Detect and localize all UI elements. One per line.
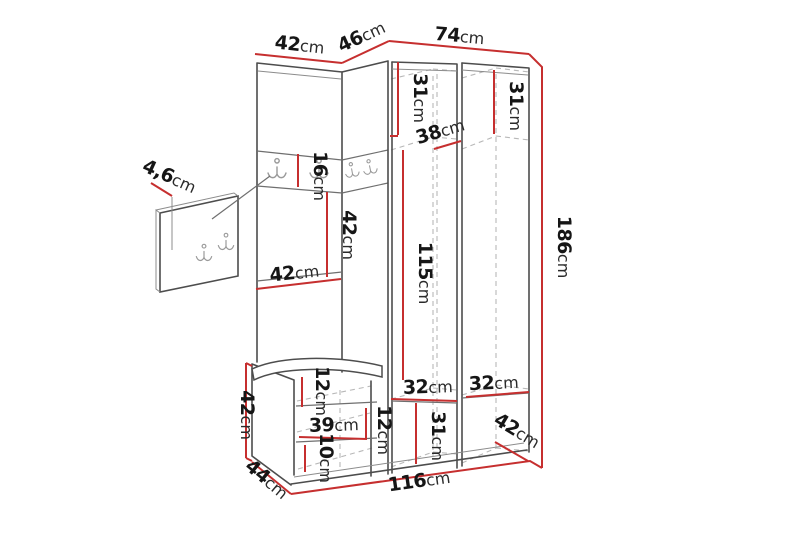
dim-line-total-height bbox=[529, 54, 542, 468]
hook-panel-leader-line bbox=[212, 176, 270, 219]
diagram-canvas: 42cm 46cm 74cm 31cm 31cm 38cm 186cm 4,6c… bbox=[0, 0, 800, 533]
dim-label-bench-depth: 44cm bbox=[241, 455, 293, 504]
dim-label-bench-top-gap: 12cm bbox=[311, 366, 333, 416]
hook-icon bbox=[268, 159, 286, 178]
hook-icon bbox=[218, 233, 233, 249]
hook-icon bbox=[344, 161, 360, 177]
dim-label-top-width-left: 42cm bbox=[274, 31, 326, 58]
dim-label-bench-bottom-gap: 10cm bbox=[315, 433, 337, 483]
left-cabinet-top-inner-edge bbox=[258, 71, 341, 79]
dim-label-bottom-shelf-width-right: 32cm bbox=[468, 371, 519, 396]
dim-label-bottom-space-height: 31cm bbox=[427, 411, 449, 461]
dim-label-open-space-height: 42cm bbox=[338, 210, 360, 260]
dim-label-top-width-corner: 46cm bbox=[334, 16, 388, 57]
dim-label-total-height: 186cm bbox=[553, 216, 575, 279]
hook-icon bbox=[196, 244, 211, 260]
dim-label-top-shelf-depth-mid: 31cm bbox=[409, 73, 431, 123]
dim-label-total-width: 116cm bbox=[387, 466, 452, 496]
dim-label-bench-height: 42cm bbox=[236, 390, 258, 440]
dim-label-hook-band-height: 16cm bbox=[309, 151, 331, 201]
dim-label-hanging-space-height: 115cm bbox=[414, 242, 436, 305]
hook-icon bbox=[362, 158, 378, 175]
furniture-dimension-diagram: 42cm 46cm 74cm 31cm 31cm 38cm 186cm 4,6c… bbox=[0, 0, 800, 533]
wall-hook-panel bbox=[156, 176, 270, 292]
dimension-labels: 42cm 46cm 74cm 31cm 31cm 38cm 186cm 4,6c… bbox=[139, 16, 575, 504]
left-cabinet-outline bbox=[257, 63, 342, 372]
middle-cabinet-top-inner-edge bbox=[392, 69, 457, 71]
dim-label-bottom-shelf-width-mid: 32cm bbox=[403, 375, 454, 399]
dim-label-bench-mid-gap: 12cm bbox=[373, 405, 395, 455]
dim-label-top-shelf-depth-right: 31cm bbox=[505, 81, 527, 131]
dim-label-hook-panel-size: 4,6cm bbox=[139, 155, 200, 198]
dim-label-top-width-right: 74cm bbox=[434, 23, 486, 49]
